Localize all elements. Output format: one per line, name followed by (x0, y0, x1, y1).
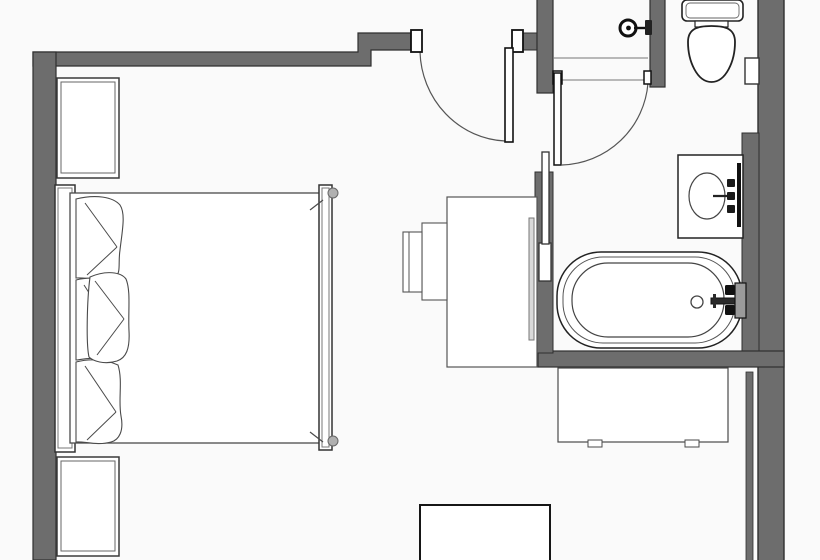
sink-knob-3 (727, 205, 735, 213)
toilet-paper-holder-bracket (645, 20, 652, 35)
bedpost-top (328, 188, 338, 198)
entry-door-arc (420, 52, 505, 141)
bathtub-valve-plate (735, 283, 746, 318)
luggage-bench (420, 505, 550, 560)
bath-door-jamb-right (644, 71, 651, 84)
bathtub-drain (691, 296, 703, 308)
entry-door-jamb-left (411, 30, 422, 52)
entry-right-stub-wall (523, 33, 537, 50)
right-wall (758, 0, 784, 560)
floorplan-svg (0, 0, 820, 560)
left-wall (33, 52, 56, 560)
toilet-bowl (688, 26, 735, 82)
bathtub-spout-lever (713, 294, 716, 308)
desk-chair-seat (422, 223, 447, 300)
sink-knob-2 (727, 192, 735, 200)
bathtub-knob-bottom (725, 305, 735, 315)
sink-knob-1 (727, 179, 735, 187)
sink-backsplash (737, 163, 741, 227)
floorplan-image (0, 0, 820, 560)
desk-chair-back (403, 232, 422, 292)
desk (447, 197, 537, 367)
bath-door-arc (562, 83, 648, 165)
bedpost-bottom (328, 436, 338, 446)
partition-pocket-slot (539, 243, 551, 281)
dresser-foot-right (685, 440, 699, 447)
dresser (558, 368, 728, 442)
bath-door-leaf (554, 73, 561, 165)
toilet-stub-wall (650, 0, 665, 87)
wall-niche (745, 58, 759, 84)
entry-vertical-wall (537, 0, 553, 93)
partition-mirror (529, 218, 534, 340)
bathroom-bottom-wall (538, 351, 784, 367)
dresser-foot-left (588, 440, 602, 447)
bed-footboard (319, 185, 332, 450)
toilet-paper-holder-dot (626, 26, 631, 31)
partition-pocket-panel (542, 152, 549, 244)
pillow-bottom (76, 360, 122, 444)
entry-door-leaf (505, 48, 513, 142)
bathtub-knob-top (725, 285, 735, 295)
nightstand-top (57, 78, 119, 178)
pillow-top (76, 197, 123, 280)
top-wall (33, 33, 411, 66)
lower-right-wall-strip (746, 372, 753, 560)
right-plumbing-chase (742, 133, 759, 353)
nightstand-bottom (57, 457, 119, 556)
